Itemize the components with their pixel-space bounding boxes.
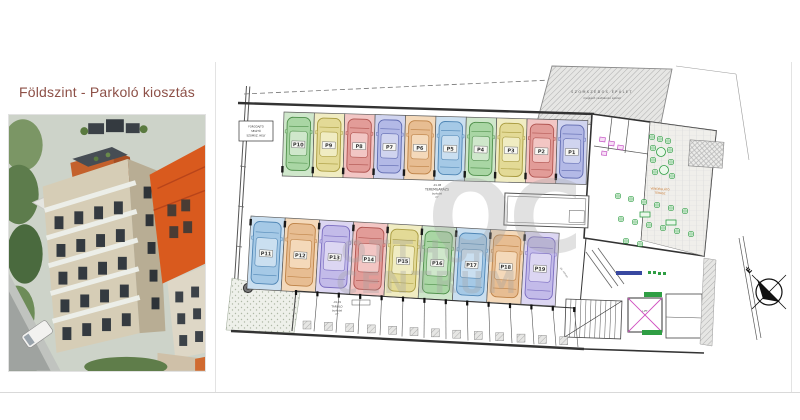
page-title: Földszint - Parkoló kiosztás	[6, 84, 208, 100]
building-render-illustration	[9, 115, 205, 371]
side-pavement	[700, 258, 716, 346]
parking-spot: P16	[417, 226, 457, 301]
svg-text:P4: P4	[477, 147, 485, 153]
terrace-label-2: TERASZ	[653, 191, 665, 196]
svg-text:P2: P2	[538, 149, 546, 155]
car-lift-platform	[504, 193, 589, 228]
parking-spot: P7	[372, 115, 405, 180]
parking-spot: P14	[348, 222, 388, 297]
floor-plan: SZOMSZÉDOS ÉPÜLET meglévő csatlakozó épü…	[215, 60, 800, 395]
plan-left-edge	[215, 62, 216, 392]
svg-text:P18: P18	[500, 264, 511, 271]
svg-text:P1: P1	[568, 150, 576, 156]
svg-text:P12: P12	[295, 253, 306, 260]
neighbor-label-1: SZOMSZÉDOS ÉPÜLET	[571, 89, 633, 94]
svg-text:P10: P10	[293, 142, 304, 148]
svg-text:m²: m²	[435, 196, 438, 199]
rooms-block: VENDÉGLÁTÓ TERASZ	[584, 114, 724, 256]
stairs	[565, 299, 622, 339]
svg-text:-01.08: -01.08	[433, 183, 442, 187]
door-mat	[616, 271, 642, 275]
svg-text:P17: P17	[466, 262, 477, 269]
listing-page: Földszint - Parkoló kiosztás	[0, 0, 800, 420]
parking-spot: P17	[451, 227, 491, 302]
ramp-label: gk. rámpa	[559, 267, 569, 279]
pergola	[688, 140, 724, 168]
svg-text:P14: P14	[363, 257, 374, 264]
svg-text:P15: P15	[398, 259, 409, 266]
svg-text:TÁROLÓ: TÁROLÓ	[330, 304, 343, 309]
svg-text:P5: P5	[447, 146, 455, 152]
bottom-divider	[0, 392, 800, 393]
svg-text:P9: P9	[325, 143, 333, 149]
parking-spot: P6	[403, 115, 436, 180]
svg-text:P3: P3	[507, 148, 515, 154]
elevator: LIFT	[628, 298, 662, 332]
parking-spot: P11	[246, 216, 286, 291]
parking-spot: P5	[433, 116, 466, 181]
garage-room-label: -01.08 TEREMGARÁZS burkolat m²	[424, 183, 449, 199]
parking-spot: P19	[520, 231, 560, 306]
svg-text:TEREMGARÁZS: TEREMGARÁZS	[424, 187, 449, 192]
plan-right-edge	[791, 62, 792, 392]
svg-text:P16: P16	[432, 261, 443, 268]
parking-spot: P13	[314, 220, 354, 295]
lift-label: LIFT	[642, 309, 648, 313]
svg-text:P6: P6	[416, 146, 424, 152]
svg-text:P19: P19	[535, 266, 546, 273]
svg-text:P7: P7	[386, 145, 394, 151]
parking-spot: P18	[485, 229, 525, 304]
parking-spot: P4	[463, 117, 496, 182]
parking-spot: P15	[383, 224, 423, 299]
planter-strip	[648, 271, 666, 275]
parking-spot: P10	[281, 112, 314, 177]
side-room	[666, 294, 702, 338]
building-photo	[8, 114, 206, 372]
parking-spot: P8	[342, 114, 375, 179]
svg-text:SZOMSZ. HELY: SZOMSZ. HELY	[246, 134, 265, 138]
parking-row-top: P10P9P8P7P6P5P4P3P2P1	[281, 112, 588, 184]
parking-spot: P1	[555, 120, 588, 185]
storage-room-label: -01.09 TÁROLÓ burkolat m²	[330, 300, 370, 316]
svg-text:P13: P13	[329, 255, 340, 262]
svg-text:P8: P8	[355, 144, 363, 150]
neighbor-label-2: meglévő csatlakozó épület	[583, 96, 621, 100]
turntable-note: FORGÓAJTÓ SEGÍTŐ SZOMSZ. HELY	[239, 121, 273, 141]
svg-text:P11: P11	[261, 251, 272, 258]
green-bar-bottom	[642, 330, 662, 335]
parking-spot: P9	[311, 113, 344, 178]
stair-lift-block: gk. rámpa	[559, 248, 716, 346]
parking-spot: P3	[494, 118, 527, 183]
parking-spot: P12	[280, 218, 320, 293]
floor-plan-drawing: SZOMSZÉDOS ÉPÜLET meglévő csatlakozó épü…	[215, 60, 800, 395]
green-bar-top	[644, 292, 662, 297]
parking-spot: P2	[524, 119, 557, 184]
